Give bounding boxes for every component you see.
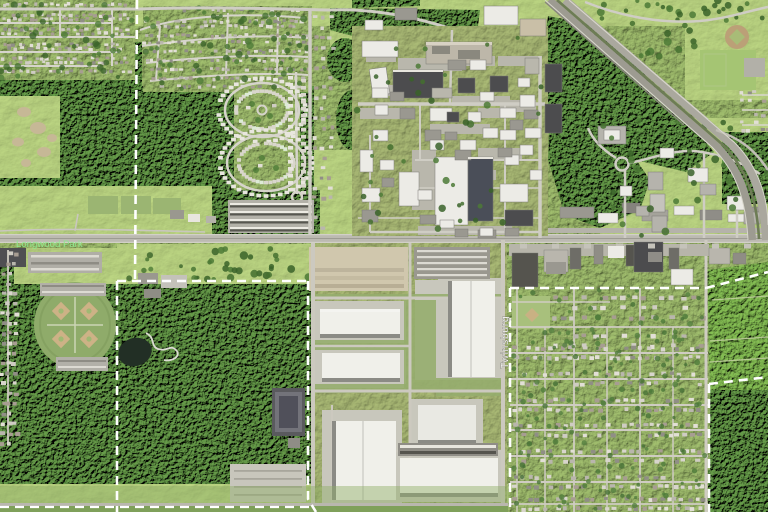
svg-text:Longwood Park: Longwood Park bbox=[16, 239, 83, 250]
svg-text:Twinsburg: Twinsburg bbox=[499, 316, 511, 369]
